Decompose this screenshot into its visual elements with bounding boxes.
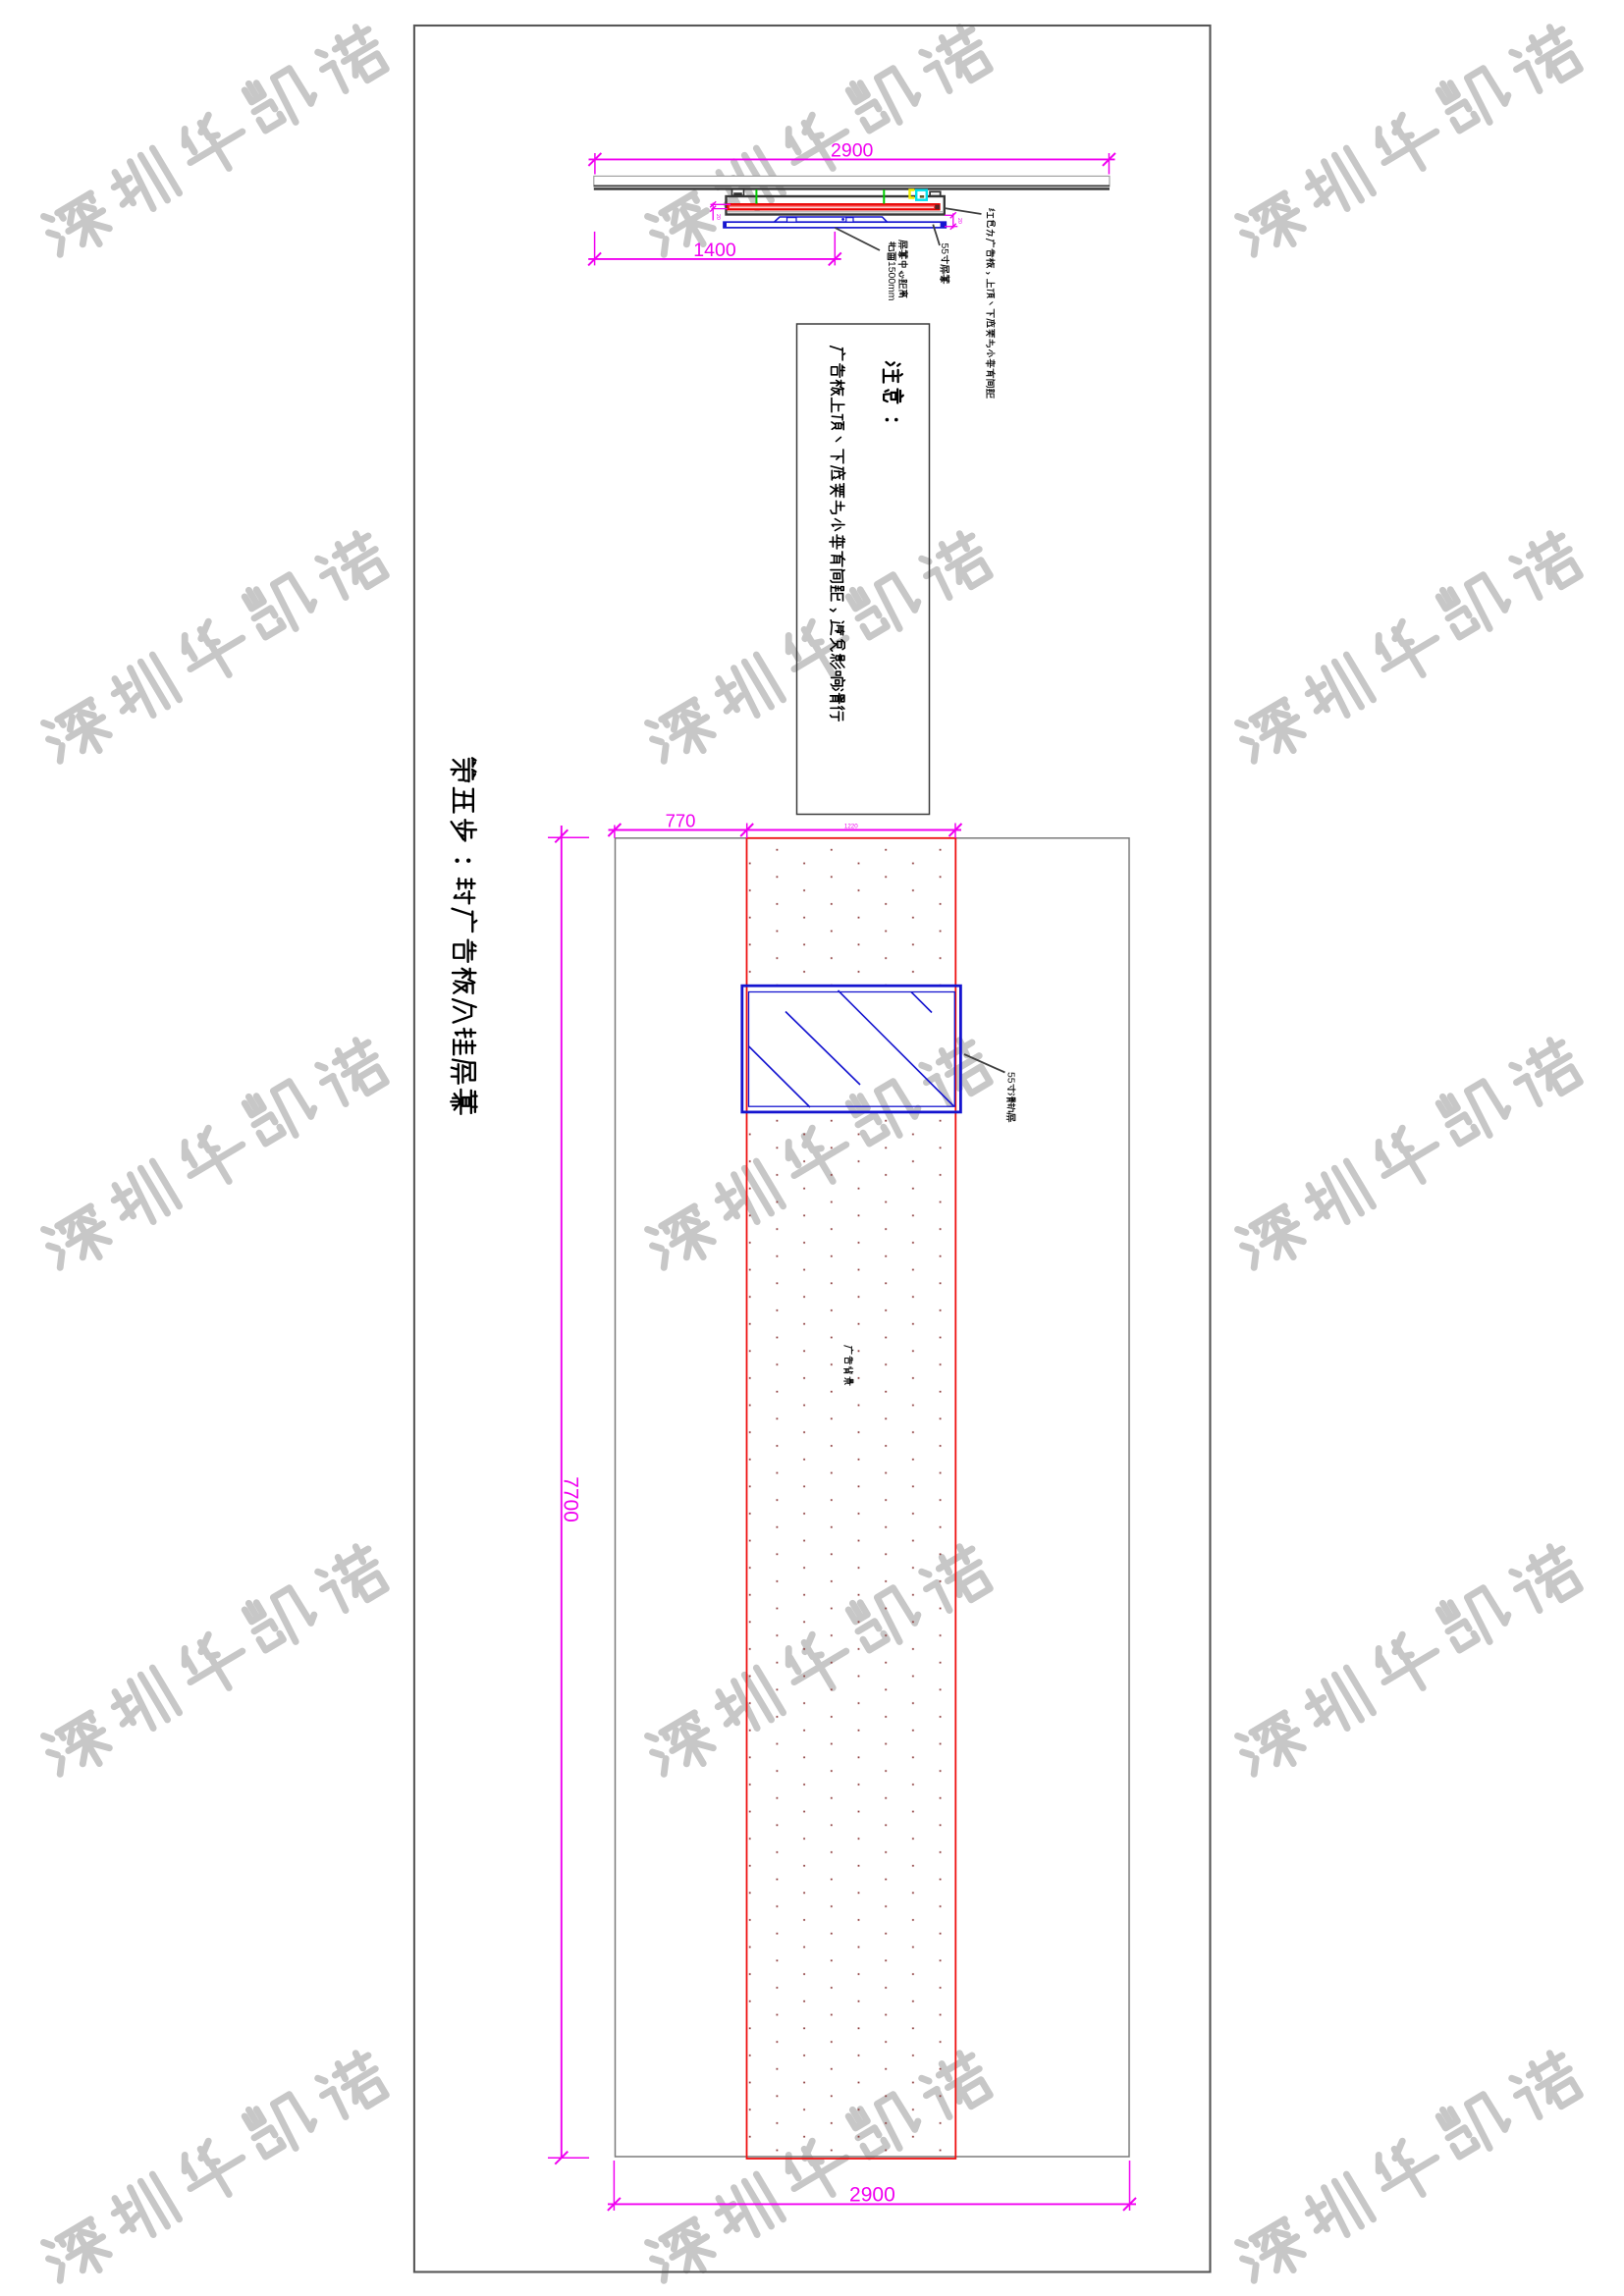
svg-text:2900: 2900 [831,140,874,162]
svg-text:1500mm: 1500mm [886,261,896,300]
svg-text:770: 770 [666,811,696,831]
svg-text:1220: 1220 [844,824,858,830]
svg-text:2900: 2900 [849,2183,895,2206]
svg-text:55: 55 [939,243,949,255]
svg-text:55: 55 [1004,1072,1015,1084]
svg-text:7700: 7700 [560,1476,582,1522]
svg-text:1400: 1400 [693,240,736,261]
svg-text:20: 20 [715,214,721,220]
svg-text:20: 20 [956,218,962,224]
